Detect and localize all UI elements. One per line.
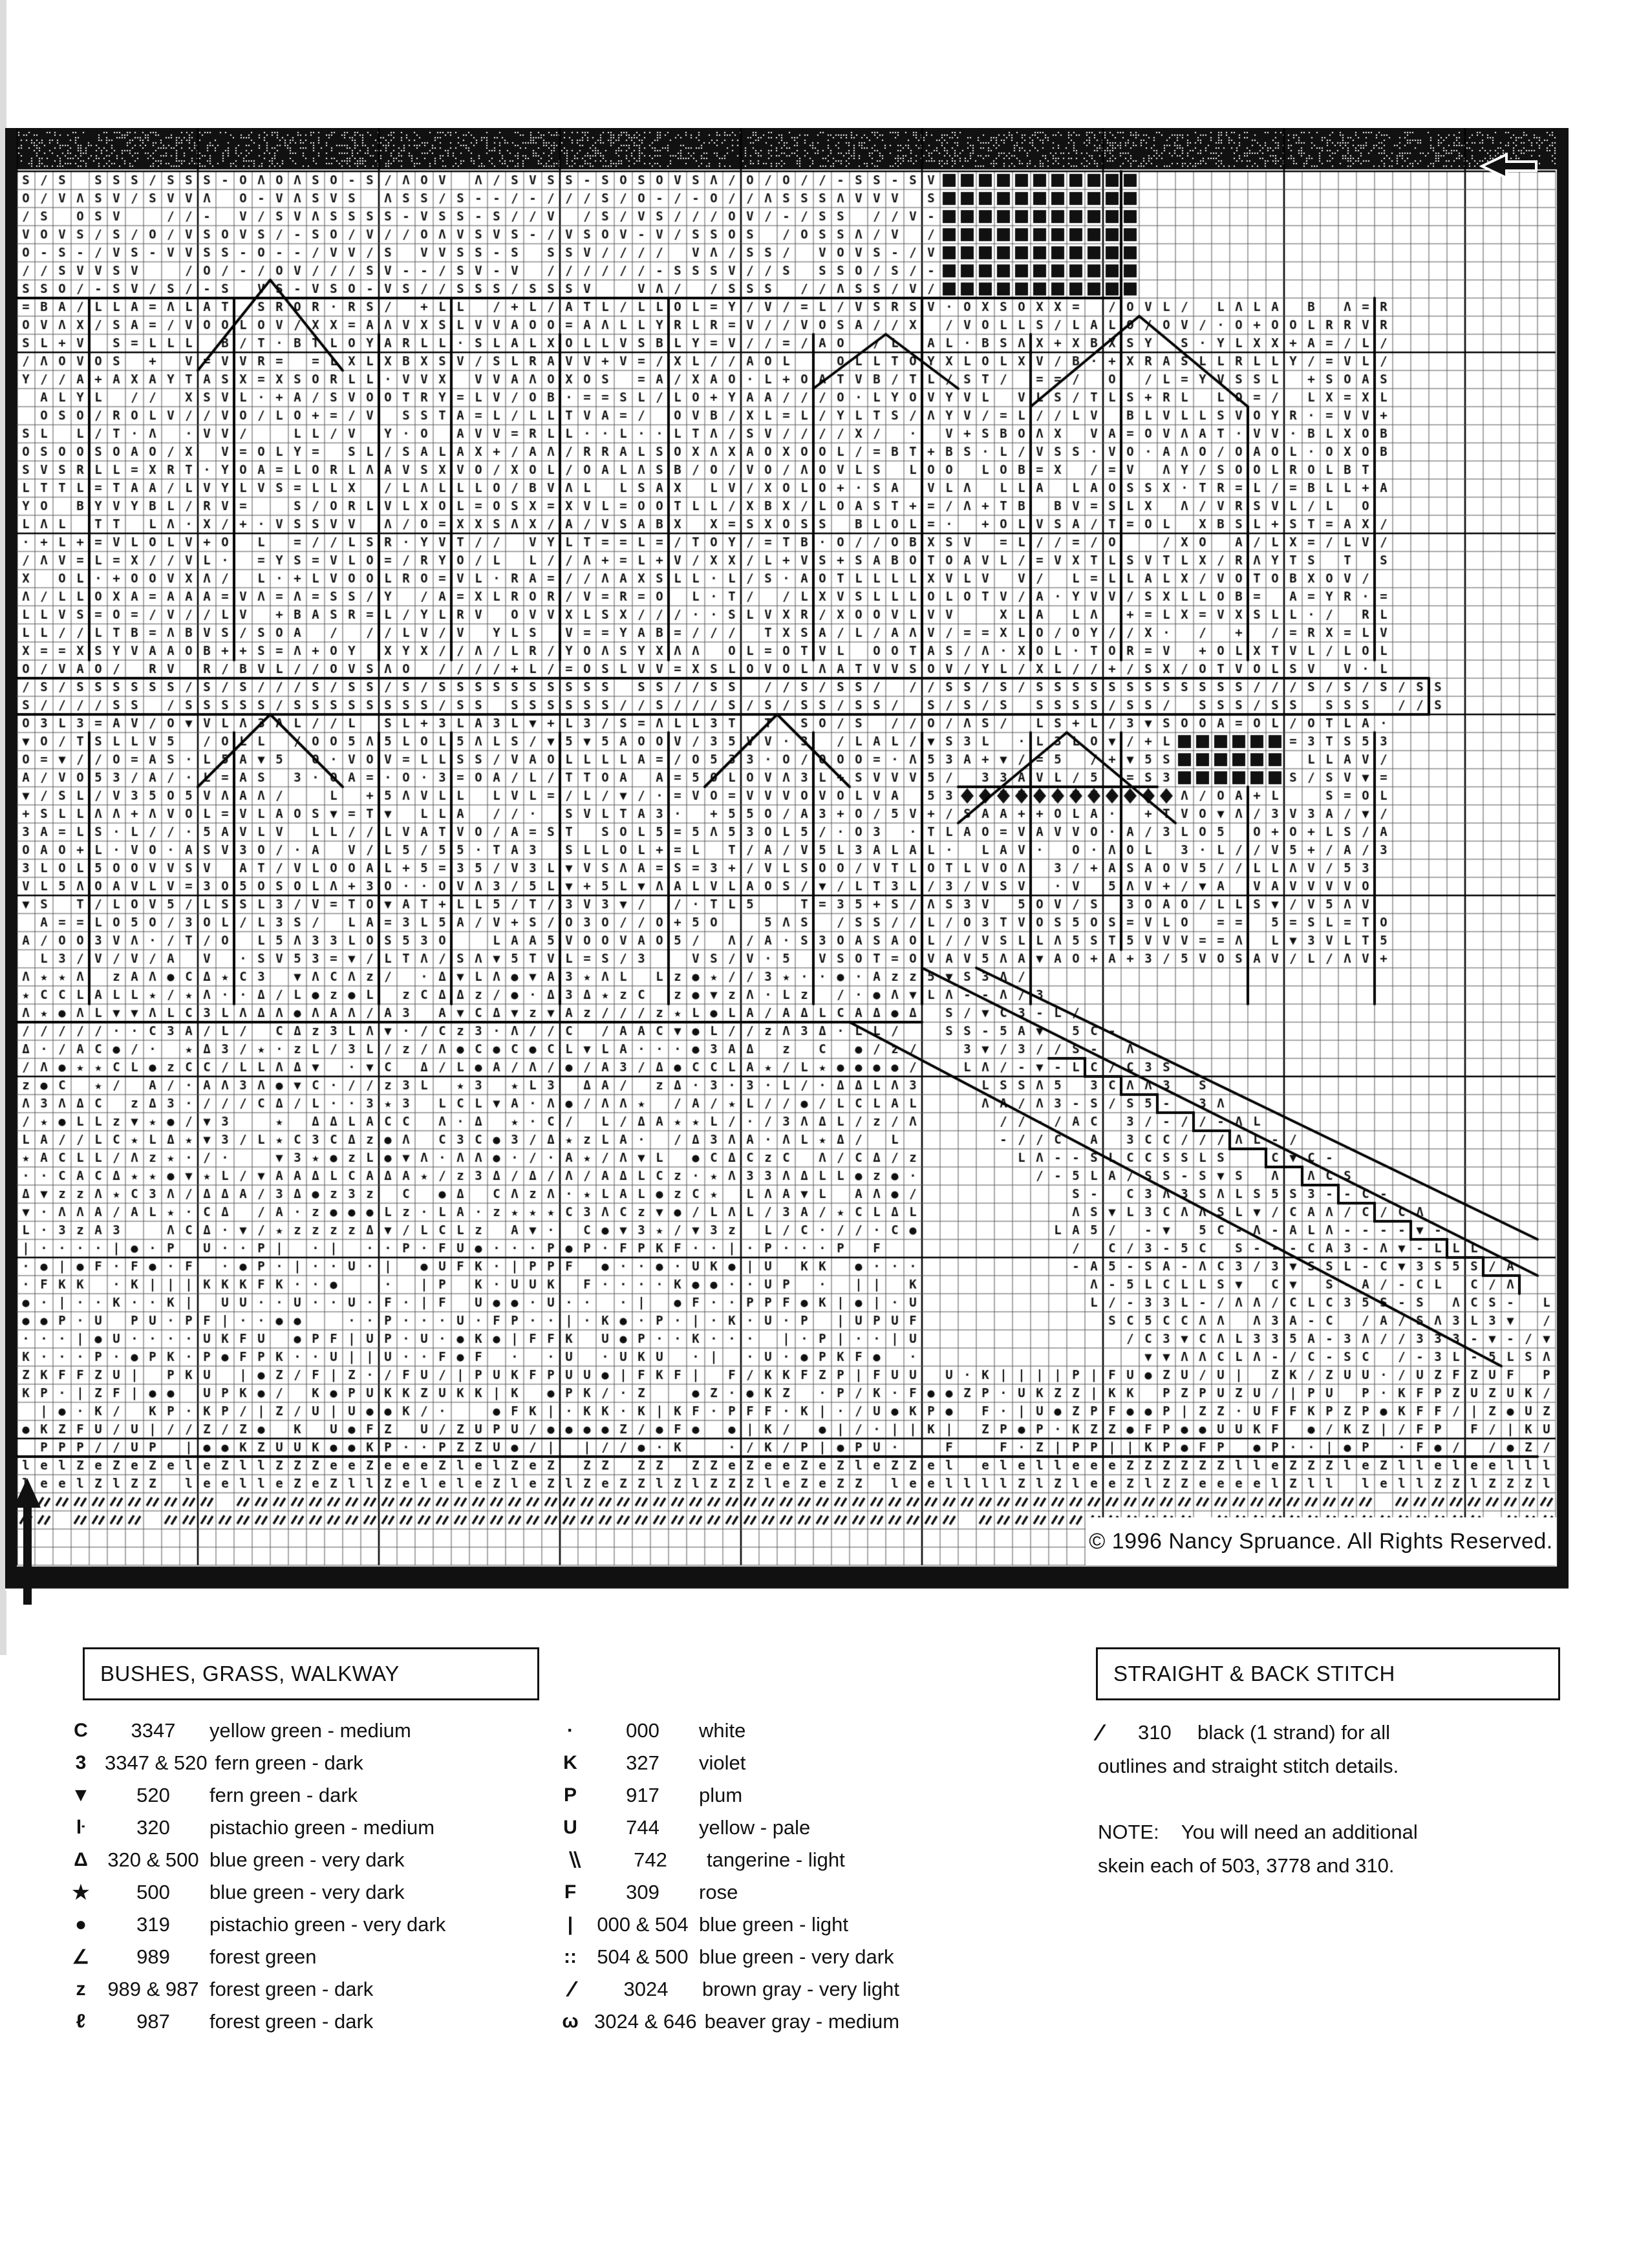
legend-entry: ω3024 & 646beaver gray - medium [546,2006,1064,2038]
thread-symbol-icon: C [57,1720,105,1742]
thread-symbol-icon: · [546,1720,594,1742]
thread-code: 3347 [105,1719,202,1742]
thread-symbol-icon: ● [57,1914,105,1936]
up-arrow-shaft [23,1508,32,1605]
legend-entry: U744yellow - pale [546,1812,1064,1844]
thread-color-name: plum [699,1784,742,1807]
note-label: NOTE: [1098,1821,1159,1843]
legend-entry: ★500blue green - very dark [57,1876,535,1909]
thread-code: 000 [594,1719,691,1742]
thread-symbol-icon: ℓ [57,2011,105,2033]
thread-color-name: blue green - very dark [209,1848,405,1872]
thread-color-name: rose [699,1881,738,1904]
thread-color-name: blue green - very dark [209,1881,405,1904]
backstitch-text-line1: black (1 strand) for all [1197,1721,1390,1744]
pattern-chart: © 1996 Nancy Spruance. All Rights Reserv… [5,128,1569,1590]
backstitch-stroke-icon: ∕ [1098,1716,1138,1749]
backstitch-body: ∕310black (1 strand) for all outlines an… [1098,1715,1557,1883]
thread-code: 504 & 500 [594,1945,691,1969]
thread-color-name: blue green - light [699,1913,848,1936]
legend-entry: ●319pistachio green - very dark [57,1909,535,1941]
legend-entry: ·000white [546,1715,1064,1747]
backstitch-code: 310 [1138,1716,1197,1749]
thread-code: 500 [105,1881,202,1904]
thread-symbol-icon: ▼ [57,1784,105,1806]
pattern-grid-canvas [5,128,1569,1590]
legend-entry: ∖∖742tangerine - light [546,1844,1064,1876]
thread-symbol-icon: ⁄⁄ [546,1977,597,2002]
thread-color-name: brown gray - very light [702,1978,899,2001]
legend-entry: |000 & 504blue green - light [546,1909,1064,1941]
legend-entry: F309rose [546,1876,1064,1909]
legend-entry: 33347 & 520fern green - dark [57,1747,535,1779]
note-line2: skein each of 503, 3778 and 310. [1098,1849,1557,1883]
thread-symbol-icon: 3 [57,1752,105,1774]
legend-entry: ::504 & 500blue green - very dark [546,1941,1064,1973]
legend-column-2: ·000whiteK327violetP917plumU744yellow - … [546,1715,1064,2038]
legend-entry: ∠989forest green [57,1941,535,1973]
legend-column-1: C3347yellow green - medium33347 & 520fer… [57,1715,535,2038]
thread-code: 742 [602,1848,699,1872]
thread-code: 520 [105,1784,202,1807]
thread-color-name: tangerine - light [707,1848,845,1872]
thread-color-name: violet [699,1751,745,1775]
thread-color-name: pistachio green - very dark [209,1913,445,1936]
up-arrow-icon [13,1478,41,1607]
thread-color-name: blue green - very dark [699,1945,894,1969]
thread-color-name: yellow green - medium [209,1719,411,1742]
legend-entry: z989 & 987forest green - dark [57,1973,535,2006]
thread-code: 744 [594,1816,691,1839]
thread-symbol-icon: Δ [57,1849,105,1871]
thread-symbol-icon: ∠ [57,1946,105,1969]
thread-color-name: fern green - dark [215,1751,363,1775]
thread-code: 917 [594,1784,691,1807]
thread-code: 3347 & 520 [105,1751,208,1775]
thread-code: 989 [105,1945,202,1969]
legend-entry: Δ320 & 500blue green - very dark [57,1844,535,1876]
thread-symbol-icon: U [546,1817,594,1839]
thread-code: 989 & 987 [105,1978,202,2001]
thread-color-name: pistachio green - medium [209,1816,434,1839]
thread-symbol-icon: F [546,1881,594,1903]
thread-symbol-icon: ★ [57,1881,105,1904]
legend-entry: ŀ320pistachio green - medium [57,1812,535,1844]
copyright-notice: © 1996 Nancy Spruance. All Rights Reserv… [1086,1517,1556,1565]
thread-color-name: fern green - dark [209,1784,358,1807]
thread-color-name: beaver gray - medium [705,2010,900,2033]
legend-entry: P917plum [546,1779,1064,1812]
thread-symbol-icon: P [546,1784,594,1806]
legend-entry: ℓ987forest green - dark [57,2006,535,2038]
thread-code: 320 [105,1816,202,1839]
thread-symbol-icon: ω [546,2011,594,2033]
thread-symbol-icon: :: [546,1946,594,1968]
thread-symbol-icon: z [57,1978,105,2000]
legend-entry: K327violet [546,1747,1064,1779]
thread-symbol-icon: | [546,1914,594,1936]
thread-color-name: forest green - dark [209,1978,373,2001]
thread-symbol-icon: ŀ [57,1817,105,1839]
legend-title-box: BUSHES, GRASS, WALKWAY [83,1647,539,1700]
up-arrow-head [14,1478,41,1508]
thread-code: 309 [594,1881,691,1904]
thread-code: 000 & 504 [594,1913,691,1936]
thread-symbol-icon: ∖∖ [546,1849,602,1872]
backstitch-title: STRAIGHT & BACK STITCH [1113,1662,1395,1686]
note-line1: You will need an additional [1181,1821,1418,1843]
thread-symbol-icon: K [546,1752,594,1774]
backstitch-note: NOTE:You will need an additional skein e… [1098,1815,1557,1883]
left-arrow-icon [1479,153,1539,180]
thread-code: 3024 [597,1978,694,2001]
thread-code: 319 [105,1913,202,1936]
pattern-page: © 1996 Nancy Spruance. All Rights Reserv… [0,0,1650,2268]
thread-code: 3024 & 646 [594,2010,697,2033]
backstitch-title-box: STRAIGHT & BACK STITCH [1096,1647,1560,1700]
legend-entry: ▼520fern green - dark [57,1779,535,1812]
backstitch-entry: ∕310black (1 strand) for all [1098,1715,1557,1749]
backstitch-text-line2: outlines and straight stitch details. [1098,1749,1557,1783]
legend-entry: ⁄⁄3024brown gray - very light [546,1973,1064,2006]
thread-code: 320 & 500 [105,1848,202,1872]
legend-entry: C3347yellow green - medium [57,1715,535,1747]
legend-title: BUSHES, GRASS, WALKWAY [100,1662,400,1686]
thread-color-name: forest green [209,1945,316,1969]
thread-color-name: forest green - dark [209,2010,373,2033]
thread-color-name: white [699,1719,745,1742]
thread-code: 987 [105,2010,202,2033]
thread-color-name: yellow - pale [699,1816,810,1839]
thread-code: 327 [594,1751,691,1775]
